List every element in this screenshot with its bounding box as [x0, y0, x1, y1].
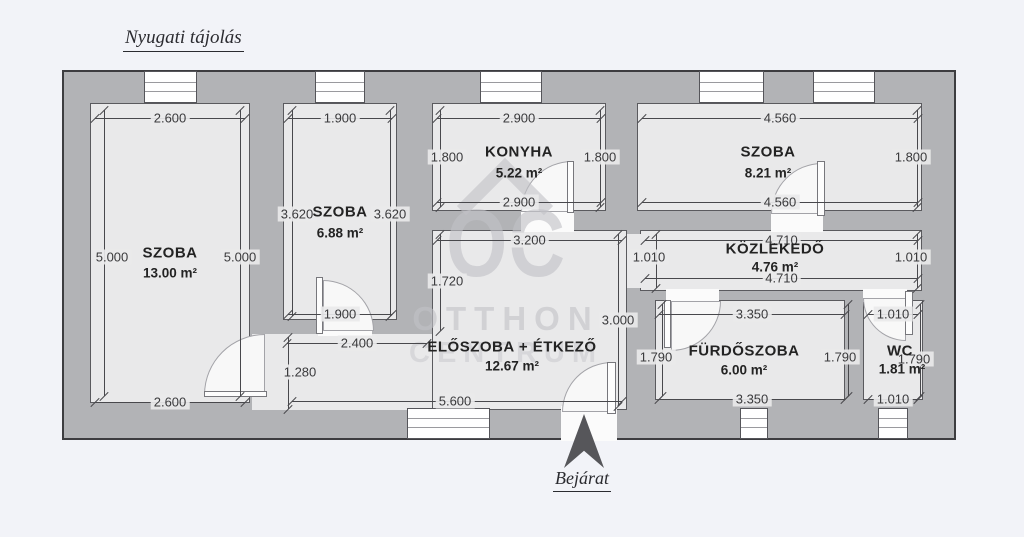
door-leaf — [567, 161, 574, 213]
dimension-label: 1.010 — [630, 250, 669, 265]
window — [878, 408, 908, 439]
dimension-label: 2.400 — [338, 336, 377, 351]
room-area-label: 6.88 m² — [317, 226, 364, 241]
door-leaf — [316, 277, 323, 334]
dimension-label: 3.350 — [733, 392, 772, 407]
entrance-label: Bejárat — [553, 468, 611, 492]
dimension-label: 1.800 — [428, 150, 467, 165]
room-name-label: ELŐSZOBA + ÉTKEZŐ — [427, 339, 596, 356]
window — [480, 71, 542, 103]
dimension-label: 3.620 — [371, 207, 410, 222]
dimension-label: 2.600 — [151, 111, 190, 126]
window — [407, 408, 490, 439]
dimension-label: 3.620 — [278, 207, 317, 222]
dimension-label: 4.560 — [761, 111, 800, 126]
window — [144, 71, 197, 103]
room-name-label: SZOBA — [313, 204, 368, 221]
dimension-label: 2.900 — [500, 195, 539, 210]
room-area-label: 6.00 m² — [721, 363, 768, 378]
window — [699, 71, 764, 103]
orientation-note: Nyugati tájolás — [123, 27, 244, 52]
room-area-label: 8.21 m² — [745, 166, 792, 181]
room-name-label: SZOBA — [143, 245, 198, 262]
dimension-label: 1.900 — [321, 111, 360, 126]
dimension-label: 2.900 — [500, 111, 539, 126]
window — [740, 408, 768, 439]
dimension-label: 3.350 — [733, 307, 772, 322]
dimension-label: 1.800 — [581, 150, 620, 165]
dimension-line — [920, 304, 921, 396]
window — [813, 71, 875, 103]
floorplan-page: Nyugati tájolás OC OTTHON CENTRUM Bejára… — [0, 0, 1024, 537]
room-area-label: 4.76 m² — [752, 260, 799, 275]
door-leaf — [817, 161, 825, 216]
door-leaf — [204, 391, 267, 397]
room-name-label: KÖZLEKEDŐ — [726, 241, 825, 258]
room-area-label: 13.00 m² — [143, 266, 197, 281]
door-leaf — [607, 362, 616, 414]
dimension-label: 5.000 — [221, 250, 260, 265]
window — [315, 71, 365, 103]
dimension-label: 1.010 — [892, 250, 931, 265]
dimension-label: 5.000 — [93, 250, 132, 265]
room-name-label: SZOBA — [741, 144, 796, 161]
room-name-label: WC — [887, 343, 913, 360]
dimension-label: 1.790 — [821, 350, 860, 365]
dimension-label: 1.790 — [637, 350, 676, 365]
dimension-label: 5.600 — [436, 394, 475, 409]
door-leaf — [664, 300, 671, 348]
room-area-label: 5.22 m² — [496, 166, 543, 181]
dimension-label: 2.600 — [151, 395, 190, 410]
dimension-label: 1.800 — [892, 150, 931, 165]
room-area-label: 1.81 m² — [879, 362, 926, 377]
room-name-label: KONYHA — [485, 144, 553, 161]
dimension-label: 1.280 — [281, 365, 320, 380]
dimension-label: 1.720 — [428, 274, 467, 289]
dimension-label: 1.900 — [321, 307, 360, 322]
dimension-label: 3.200 — [510, 233, 549, 248]
room-area-label: 12.67 m² — [485, 359, 539, 374]
dimension-label: 1.010 — [874, 392, 913, 407]
dimension-label: 1.010 — [874, 307, 913, 322]
room-name-label: FÜRDŐSZOBA — [689, 343, 800, 360]
dimension-label: 3.000 — [599, 313, 638, 328]
dimension-label: 4.560 — [761, 195, 800, 210]
